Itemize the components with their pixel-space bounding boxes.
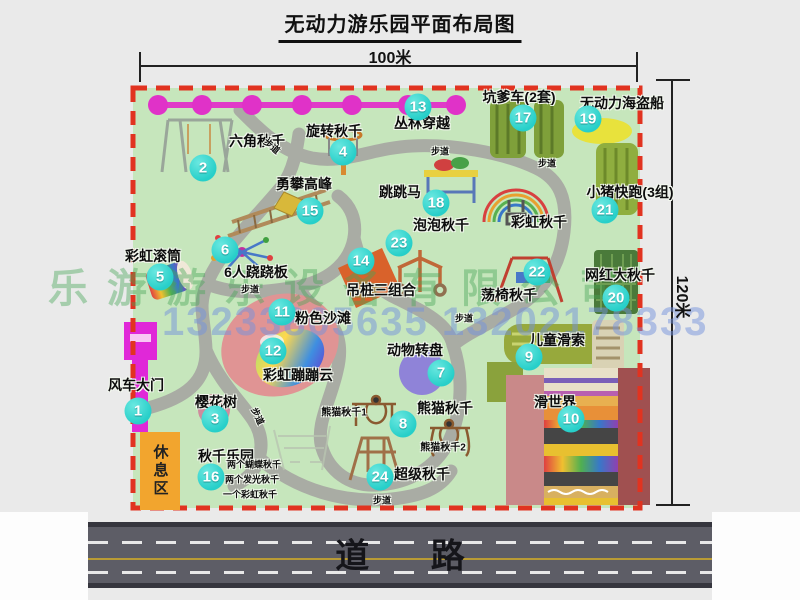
map-marker-5: 5 (147, 264, 174, 291)
map-marker-4: 4 (330, 139, 357, 166)
road-label: 道 路 (88, 529, 712, 578)
attraction-label: 熊猫秋千1 (321, 404, 367, 419)
attraction-label: 动物转盘 (387, 340, 443, 360)
attraction-label: 网红大秋千 (585, 265, 655, 285)
attraction-label: 6人跷跷板 (224, 262, 288, 282)
map-marker-9: 9 (516, 344, 543, 371)
map-marker-15: 15 (297, 198, 324, 225)
map-marker-13: 13 (405, 94, 432, 121)
map-marker-11: 11 (269, 299, 296, 326)
slide-world-shape (487, 362, 650, 505)
attraction-label: 两个蝴蝶秋千 (227, 458, 281, 471)
page-title: 无动力游乐园平面布局图 (279, 8, 522, 43)
attraction-label: 步道 (538, 157, 556, 170)
map-marker-18: 18 (423, 190, 450, 217)
rest-area-label: 休息区 (150, 444, 171, 498)
attraction-label: 步道 (431, 145, 449, 158)
attraction-label: 熊猫秋千 (417, 398, 473, 418)
map-marker-20: 20 (603, 285, 630, 312)
map-marker-8: 8 (390, 411, 417, 438)
map-marker-3: 3 (202, 406, 229, 433)
attraction-label: 粉色沙滩 (295, 308, 351, 328)
attraction-label: 勇攀高峰 (276, 174, 332, 194)
attraction-label: 步道 (373, 494, 391, 507)
map-marker-10: 10 (558, 406, 585, 433)
attraction-label: 泡泡秋千 (413, 215, 469, 235)
attraction-label: 步道 (455, 312, 473, 325)
map-marker-2: 2 (190, 155, 217, 182)
dimension-height-label: 120米 (672, 276, 696, 319)
map-marker-7: 7 (428, 360, 455, 387)
map-marker-14: 14 (348, 248, 375, 275)
map-marker-24: 24 (367, 464, 394, 491)
map-marker-16: 16 (198, 464, 225, 491)
map-marker-12: 12 (260, 338, 287, 365)
flyer-image: 乐游游乐设备有限公司 13233805635 13202178333 休息区 风… (0, 0, 800, 600)
attraction-label: 彩虹蹦蹦云 (263, 365, 333, 385)
road: 道 路 (88, 522, 712, 588)
rest-area: 休息区 (140, 432, 180, 510)
attraction-label: 吊桩三组合 (346, 280, 416, 300)
attraction-label: 旋转秋千 (306, 121, 362, 141)
map-marker-22: 22 (524, 259, 551, 286)
attraction-label: 两个发光秋千 (225, 473, 279, 486)
map-marker-17: 17 (510, 105, 537, 132)
attraction-label: 彩虹秋千 (511, 212, 567, 232)
map-marker-21: 21 (592, 197, 619, 224)
attraction-label: 跳跳马 (379, 182, 421, 202)
dimension-width-label: 100米 (369, 44, 412, 68)
left-margin (0, 512, 88, 600)
attraction-label: 熊猫秋千2 (420, 439, 466, 454)
attraction-label: 步道 (241, 283, 259, 296)
attraction-label: 一个彩虹秋千 (223, 488, 277, 501)
attraction-label: 荡椅秋千 (481, 285, 537, 305)
map-marker-19: 19 (575, 106, 602, 133)
attraction-label: 超级秋千 (394, 464, 450, 484)
map-marker-6: 6 (212, 237, 239, 264)
right-margin (712, 512, 800, 600)
map-marker-1: 1 (125, 398, 152, 425)
attraction-label: 风车大门 (108, 375, 164, 395)
attraction-label: 彩虹滚筒 (125, 246, 181, 266)
map-marker-23: 23 (386, 230, 413, 257)
